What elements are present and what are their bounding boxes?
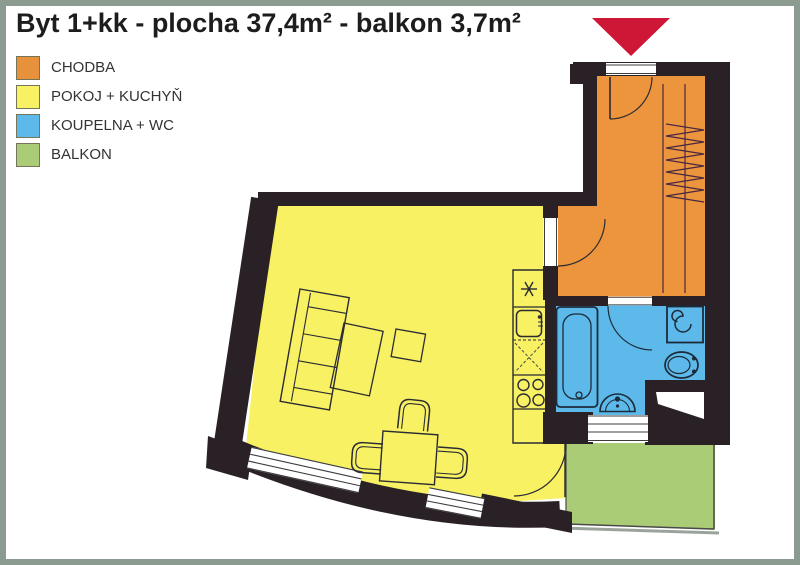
room-balkon — [566, 443, 715, 530]
room-pokoj-kuchyn — [246, 196, 566, 501]
floorplan-svg — [0, 0, 800, 565]
window-bathroom — [588, 415, 648, 442]
page: Byt 1+kk - plocha 37,4m² - balkon 3,7m² … — [0, 0, 800, 565]
entrance-arrow-icon — [592, 18, 670, 56]
room-chodba — [552, 70, 714, 300]
